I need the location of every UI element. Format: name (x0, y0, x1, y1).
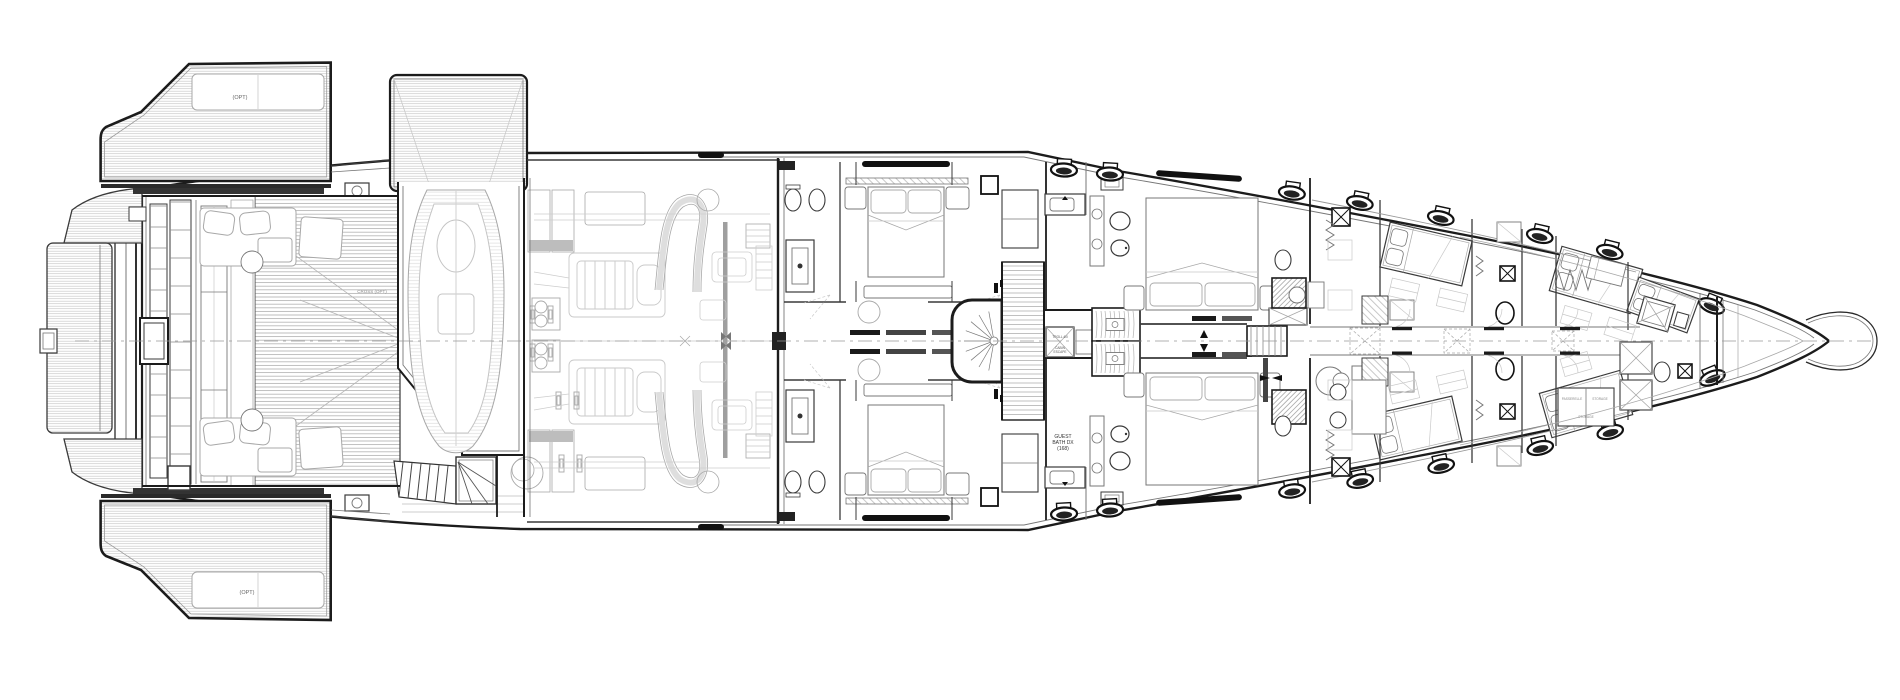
svg-text:CROSS (OPT): CROSS (OPT) (357, 289, 387, 294)
svg-text:STORAGE: STORAGE (1592, 397, 1608, 401)
svg-text:ESCAPE: ESCAPE (1054, 350, 1067, 354)
svg-text:PASSERELLE: PASSERELLE (1562, 397, 1583, 401)
svg-text:TROLL 40l: TROLL 40l (1052, 335, 1068, 339)
svg-text:(OPT): (OPT) (233, 95, 248, 101)
svg-text:(168): (168) (1057, 446, 1069, 452)
svg-text:(OPT): (OPT) (240, 590, 255, 596)
